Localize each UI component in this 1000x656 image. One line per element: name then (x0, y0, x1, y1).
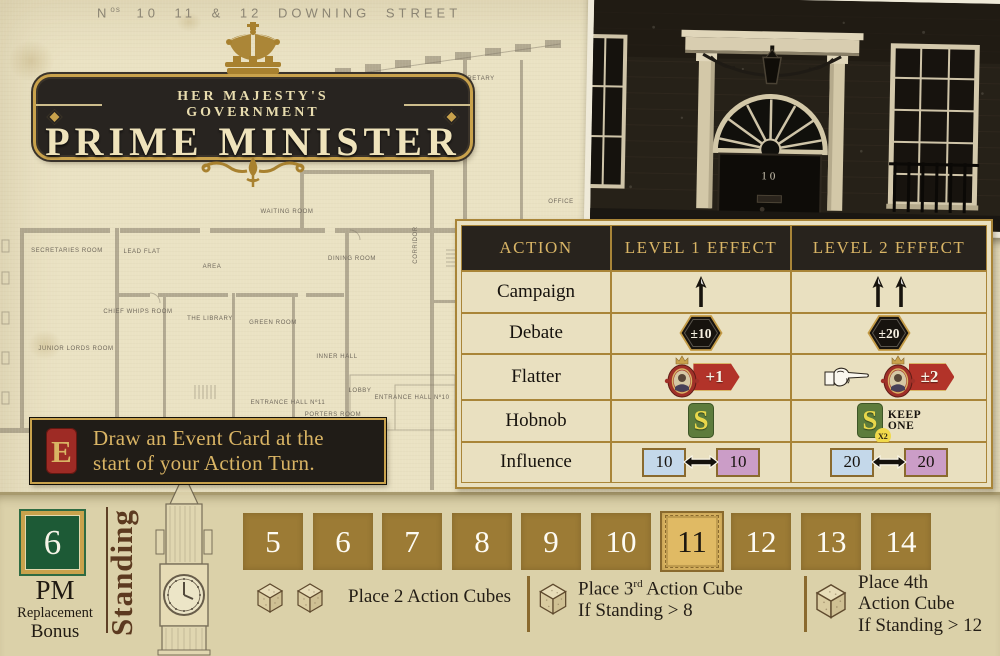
rule-place-2-cubes: Place 2 Action Cubes (348, 586, 511, 607)
up-arrow-icon (871, 276, 885, 308)
door-photo-illustration: 10 (590, 0, 1000, 232)
event-text-line1: Draw an Event Card at the (93, 426, 324, 451)
rule-4th-line2: Action Cube (858, 593, 982, 614)
support-tile: S X2 (857, 403, 883, 438)
action-cube-icon (534, 578, 572, 618)
subtitle-rule-line (404, 104, 470, 106)
standing-space-value: 9 (543, 526, 559, 557)
up-arrow-icon (894, 276, 908, 308)
plan-room-label: GREEN ROOM (249, 320, 297, 326)
hobnob-level2-cell: S X2 KEEP ONE (791, 400, 987, 442)
rule-3rd-line1: Place 3rd Action Cube (578, 578, 743, 600)
rule-4th-line1: Place 4th (858, 572, 982, 593)
rule-3rd-sup: rd (633, 578, 642, 590)
standing-space-11-current: 11 (660, 511, 724, 572)
event-card-tile: E (46, 428, 77, 474)
standing-space-9: 9 (521, 513, 581, 570)
hexagon-badge-icon: ±20 (866, 314, 912, 352)
support-letter: S (693, 407, 708, 434)
game-board: SECRETARIES ROOM LEAD FLAT AREA WAITING … (0, 0, 1000, 656)
effects-grid: ACTION LEVEL 1 EFFECT LEVEL 2 EFFECT Cam… (461, 225, 987, 483)
pm-bonus-title: PM (10, 577, 100, 604)
action-cube-icon (810, 578, 852, 622)
rule-3rd-line2: If Standing > 8 (578, 600, 743, 621)
hexagon-badge-icon: ±10 (678, 314, 724, 352)
plan-room-label: CHIEF WHIPS ROOM (103, 309, 172, 315)
street-caption-rest: 10 11 & 12 DOWNING STREET (136, 5, 461, 20)
street-caption: Nos 10 11 & 12 DOWNING STREET (97, 5, 461, 20)
column-header-level1: LEVEL 1 EFFECT (611, 225, 791, 271)
subtitle-row: HER MAJESTY'S GOVERNMENT (36, 89, 470, 121)
influence-purple-box: 20 (904, 448, 948, 477)
standing-space-7: 7 (382, 513, 442, 570)
debate-level1-cell: ±10 (611, 313, 791, 355)
standing-space-6: 6 (313, 513, 373, 570)
pm-bonus-sub1: Replacement (10, 606, 100, 621)
event-reminder-box: E Draw an Event Card at the start of you… (30, 418, 386, 484)
rule-place-4th-cube: Place 4th Action Cube If Standing > 12 (858, 572, 982, 636)
flatter-level2-cell: ±2 (791, 354, 987, 400)
title-banner: HER MAJESTY'S GOVERNMENT PRIME MINISTER (33, 74, 473, 160)
standing-space-value: 7 (404, 526, 420, 557)
influence-level1-cell: 10 10 (611, 442, 791, 484)
support-letter: S (862, 407, 877, 434)
pm-bonus-sub2: Bonus (10, 622, 100, 641)
flatter-level2-value: ±2 (921, 367, 939, 386)
standing-space-13: 13 (801, 513, 861, 570)
standing-space-8: 8 (452, 513, 512, 570)
flourish-icon (198, 157, 308, 189)
subtitle-rule-line (36, 104, 102, 106)
pm-bonus-value: 6 (44, 525, 62, 560)
standing-space-5: 5 (243, 513, 303, 570)
campaign-level1-cell (611, 271, 791, 313)
action-effects-table: ACTION LEVEL 1 EFFECT LEVEL 2 EFFECT Cam… (455, 219, 993, 489)
street-caption-n: N (97, 5, 110, 20)
plan-room-label: DINING ROOM (328, 256, 376, 262)
standing-space-12: 12 (731, 513, 791, 570)
game-title: PRIME MINISTER (36, 122, 470, 162)
event-text-line2: start of your Action Turn. (93, 451, 324, 476)
pm-replacement-bonus-tile: 6 (21, 511, 84, 574)
left-window (590, 36, 626, 187)
debate-level1-value: ±10 (691, 326, 712, 341)
influence-blue-box: 20 (830, 448, 874, 477)
event-reminder-text: Draw an Event Card at the start of your … (93, 426, 324, 476)
swap-arrow-icon (871, 454, 907, 470)
flatter-level1-value: +1 (705, 367, 723, 386)
standing-space-value: 12 (746, 526, 777, 557)
event-letter: E (51, 436, 72, 467)
hobnob-level1-cell: S (611, 400, 791, 442)
support-tile: S (688, 403, 714, 438)
banner-subtitle: HER MAJESTY'S GOVERNMENT (112, 89, 394, 121)
plan-room-label: INNER HALL (316, 354, 357, 360)
standing-space-value: 10 (606, 526, 637, 557)
keep-one-note: KEEP ONE (888, 410, 921, 432)
plan-room-label: LEAD FLAT (124, 249, 161, 255)
big-ben-illustration (140, 470, 236, 656)
action-cube-icon (252, 579, 288, 615)
standing-space-value: 5 (265, 526, 281, 557)
influence-blue-box: 10 (642, 448, 686, 477)
royal-medallion-icon (662, 355, 702, 399)
column-header-action: ACTION (461, 225, 611, 271)
plan-room-label: WAITING ROOM (261, 209, 314, 215)
standing-space-10: 10 (591, 513, 651, 570)
row-label-influence: Influence (461, 442, 611, 484)
rule-4th-line3: If Standing > 12 (858, 615, 982, 636)
standing-space-value: 8 (474, 526, 490, 557)
standing-space-value: 6 (335, 526, 351, 557)
standing-space-value: 11 (677, 526, 707, 557)
street-caption-sup: os (110, 5, 120, 14)
standing-space-value: 13 (816, 526, 847, 557)
swap-arrow-icon (683, 454, 719, 470)
current-space-frame: 11 (665, 515, 719, 568)
plan-room-label: JUNIOR LORDS ROOM (38, 346, 113, 352)
crown-icon (213, 20, 293, 76)
debate-level2-value: ±20 (879, 326, 900, 341)
right-window (886, 46, 981, 214)
plan-room-label: ENTRANCE HALL Nº10 (374, 394, 449, 401)
plan-room-label: OFFICE (548, 199, 574, 205)
row-label-campaign: Campaign (461, 271, 611, 313)
up-arrow-icon (694, 276, 708, 308)
plan-room-label: THE LIBRARY (187, 316, 233, 322)
influence-purple-box: 10 (716, 448, 760, 477)
royal-medallion-icon (878, 355, 918, 399)
column-header-level2: LEVEL 2 EFFECT (791, 225, 987, 271)
debate-level2-cell: ±20 (791, 313, 987, 355)
influence-level2-cell: 20 20 (791, 442, 987, 484)
pm-bonus-label: PM Replacement Bonus (10, 577, 100, 641)
plan-room-label: ENTRANCE HALL Nº11 (251, 399, 326, 406)
standing-space-value: 14 (886, 526, 917, 557)
action-cube-icon (292, 579, 328, 615)
standing-axis-label: Standing (102, 503, 142, 643)
plan-room-label: CORRIDOR (413, 226, 419, 264)
plan-room-label: AREA (203, 264, 222, 270)
standing-space-14: 14 (871, 513, 931, 570)
door-number: 10 (761, 170, 778, 182)
campaign-level2-cell (791, 271, 987, 313)
row-label-flatter: Flatter (461, 354, 611, 400)
keep-note-line2: ONE (888, 421, 921, 432)
rule-place-3rd-cube: Place 3rd Action Cube If Standing > 8 (578, 578, 743, 621)
flatter-level1-cell: +1 (611, 354, 791, 400)
rule-separator (804, 576, 807, 632)
rule-separator (527, 576, 530, 632)
pointing-hand-icon (824, 364, 870, 391)
plan-room-label: SECRETARIES ROOM (31, 248, 103, 254)
row-label-hobnob: Hobnob (461, 400, 611, 442)
rule-3rd-post: Action Cube (643, 578, 743, 599)
plan-room-label: LOBBY (348, 388, 371, 394)
rule-3rd-pre: Place 3 (578, 578, 633, 599)
downing-street-photo: 10 (584, 0, 1000, 238)
row-label-debate: Debate (461, 313, 611, 355)
